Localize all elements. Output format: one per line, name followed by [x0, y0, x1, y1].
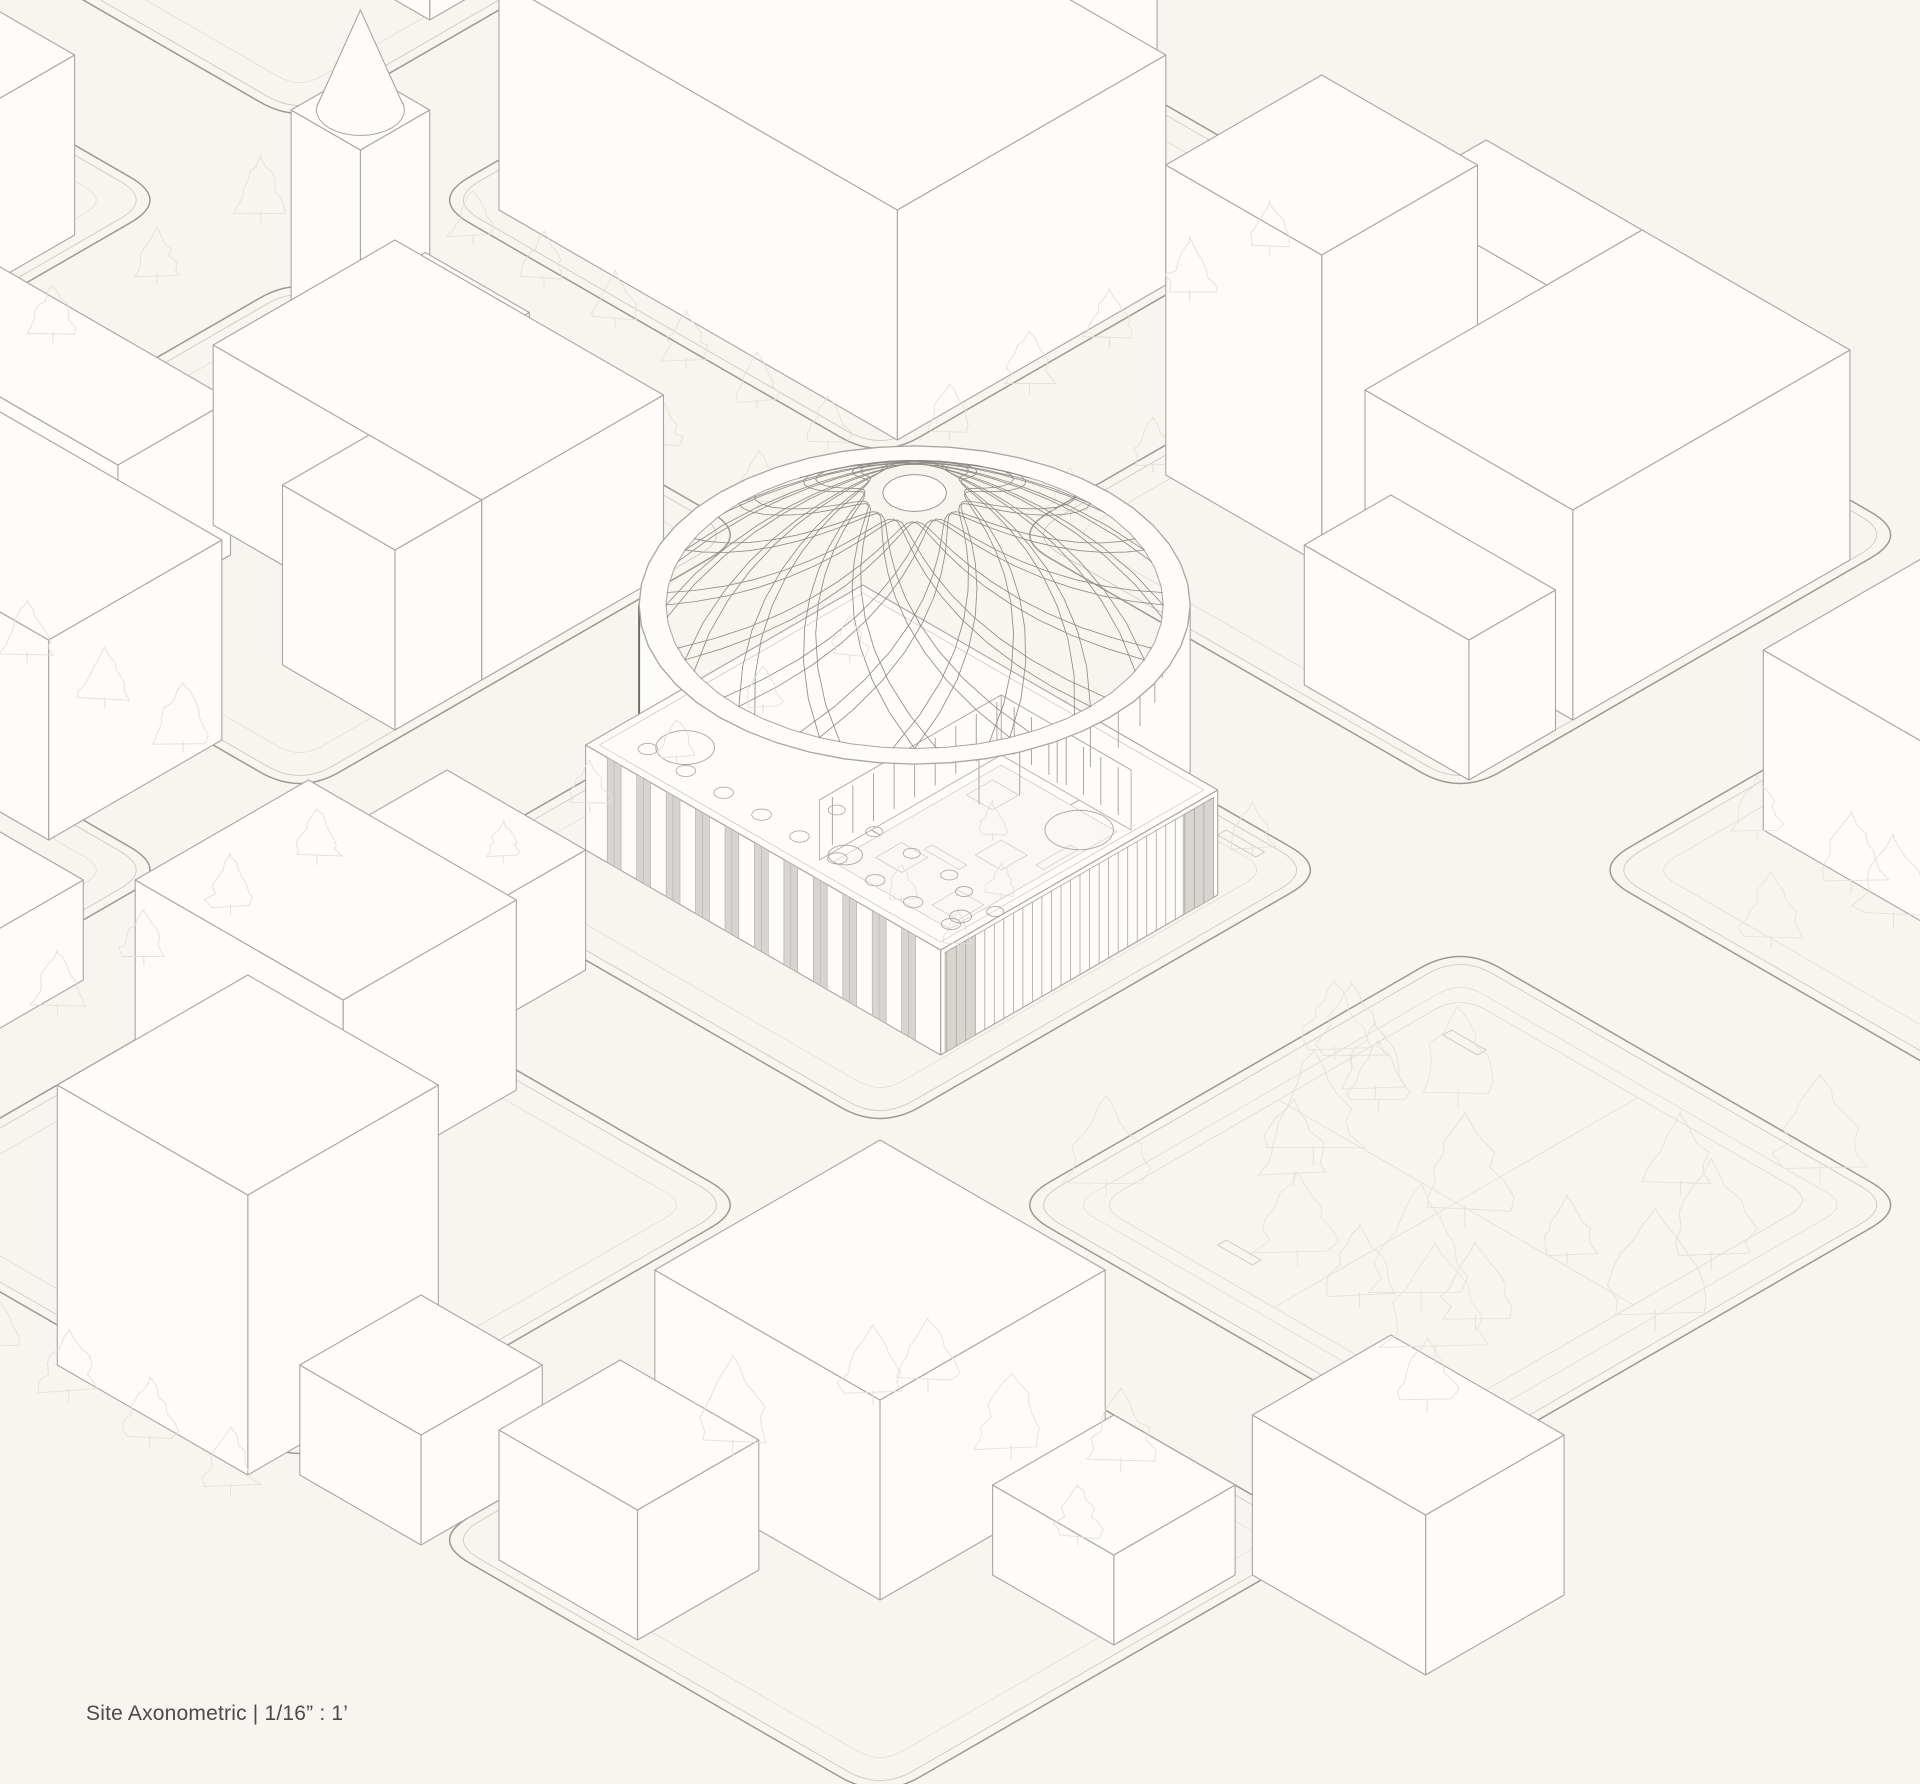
tree [1264, 1049, 1365, 1148]
tree [1062, 1095, 1151, 1183]
dome-cap [883, 475, 947, 512]
colonnade-panel [1183, 798, 1213, 916]
colonnade-panel [945, 935, 975, 1053]
tree [1379, 1243, 1488, 1347]
spire-cone [318, 10, 404, 105]
tree [1642, 1111, 1711, 1183]
tree [1544, 1195, 1598, 1256]
building-face [31, 0, 429, 20]
tree [1368, 1183, 1468, 1292]
tree [1737, 872, 1802, 938]
tree [0, 1283, 20, 1346]
tree [1326, 1224, 1395, 1297]
caption-label: Site Axonometric [86, 1702, 247, 1725]
tree [1772, 1075, 1868, 1169]
bench [1218, 830, 1265, 857]
axonometric-scene [0, 0, 1920, 1784]
bench [1443, 1030, 1486, 1055]
tree [1428, 1112, 1515, 1211]
tree [135, 227, 179, 277]
tree [1423, 1006, 1493, 1094]
caption-divider: | [253, 1702, 259, 1725]
mosque-layer [586, 446, 1218, 1055]
drawing-caption: Site Axonometric|1/16” : 1’ [86, 1702, 354, 1726]
tree [1303, 980, 1372, 1050]
tree [1253, 1172, 1339, 1253]
caption-scale: 1/16” : 1’ [264, 1702, 348, 1725]
site-axonometric-page: Site Axonometric|1/16” : 1’ [0, 0, 1920, 1784]
tree [447, 191, 494, 237]
tree [233, 155, 285, 214]
tree [1258, 1099, 1326, 1175]
tree [1347, 1040, 1410, 1100]
